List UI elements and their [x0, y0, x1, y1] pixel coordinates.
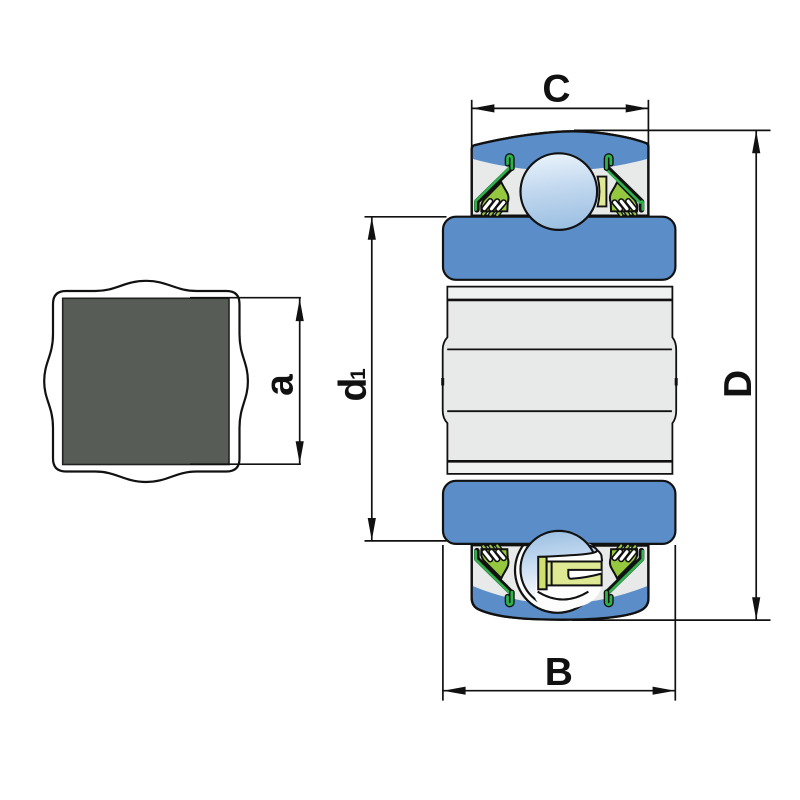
svg-text:d: d [332, 378, 375, 402]
svg-text:D: D [717, 370, 760, 398]
svg-text:1: 1 [347, 368, 370, 380]
svg-text:C: C [542, 67, 570, 110]
svg-text:B: B [545, 651, 573, 694]
svg-text:a: a [259, 374, 302, 396]
